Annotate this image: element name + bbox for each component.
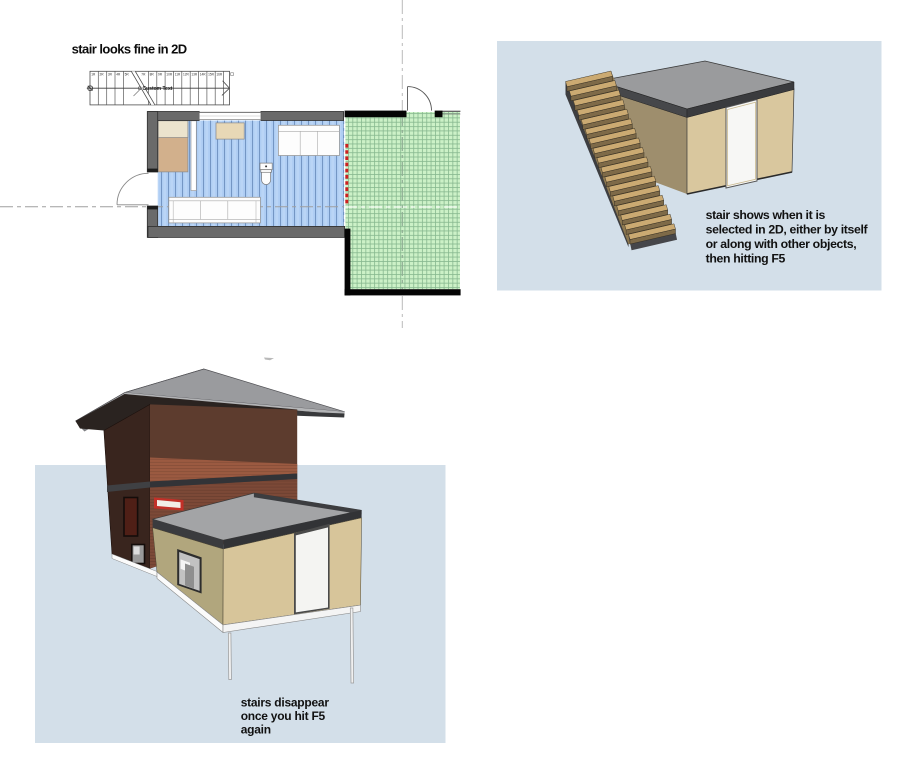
svg-text:Custom Text: Custom Text (143, 86, 173, 92)
svg-text:8R: 8R (150, 72, 155, 76)
svg-text:stairs disappear: stairs disappear (241, 696, 330, 710)
svg-text:11R: 11R (175, 72, 181, 76)
svg-text:13R: 13R (191, 72, 198, 76)
svg-text:15R: 15R (208, 72, 215, 76)
svg-text:14R: 14R (200, 72, 207, 76)
svg-text:again: again (241, 722, 271, 736)
svg-text:12R: 12R (183, 72, 190, 76)
svg-text:stair shows when it is: stair shows when it is (706, 208, 826, 222)
svg-text:once you hit F5: once you hit F5 (241, 709, 326, 723)
svg-text:stair looks fine in 2D: stair looks fine in 2D (72, 41, 187, 56)
svg-text:9R: 9R (158, 72, 163, 76)
svg-text:2R: 2R (100, 72, 105, 76)
svg-text:1R: 1R (91, 72, 96, 76)
svg-text:5R: 5R (125, 72, 130, 76)
svg-text:or along with other objects,: or along with other objects, (706, 237, 857, 251)
svg-text:16R: 16R (216, 72, 223, 76)
svg-text:3R: 3R (108, 72, 113, 76)
svg-text:10R: 10R (166, 72, 173, 76)
svg-text:then hitting F5: then hitting F5 (706, 252, 786, 266)
svg-text:7R: 7R (141, 72, 146, 76)
svg-text:4R: 4R (116, 72, 121, 76)
svg-text:selected in 2D, either by itse: selected in 2D, either by itself (706, 223, 869, 237)
